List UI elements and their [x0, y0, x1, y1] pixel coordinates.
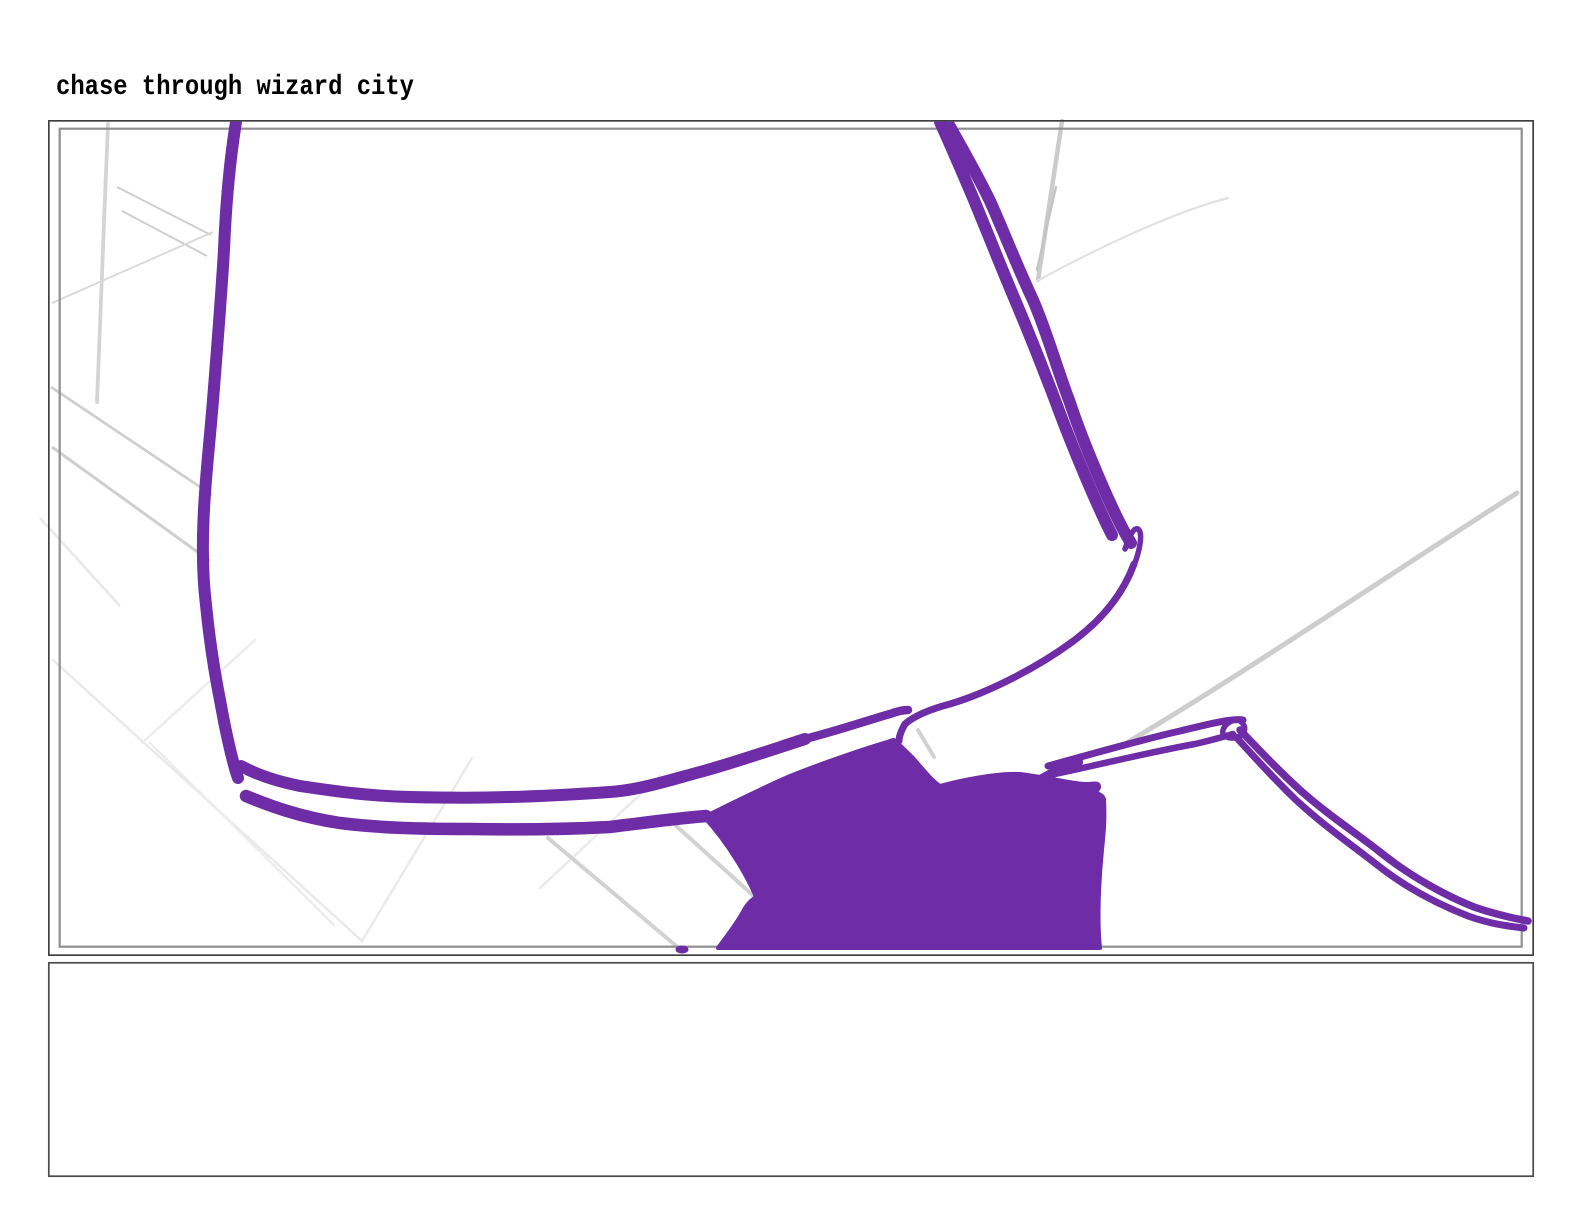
svg-text:chase through wizard city: chase through wizard city	[56, 72, 414, 103]
